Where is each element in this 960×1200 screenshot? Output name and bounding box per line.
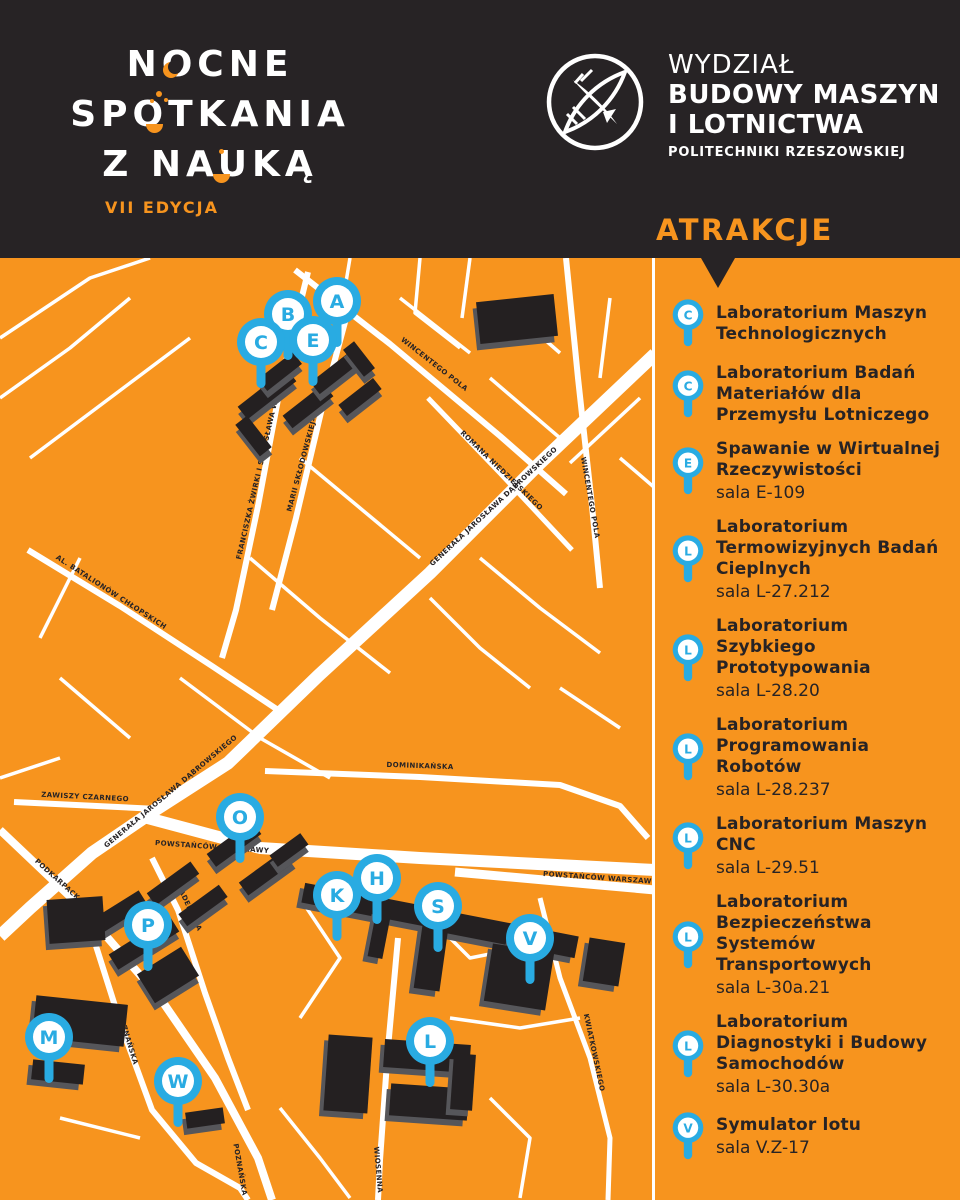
- event-map-poster: NOCNE SPOTKANIA Z NAUKĄ VII EDYCJA WYDZI…: [0, 0, 960, 1200]
- street: [560, 688, 620, 728]
- building: [181, 1107, 226, 1135]
- street: [280, 1108, 350, 1198]
- street: [30, 338, 190, 458]
- event-title-line-2: SPOTKANIA: [40, 90, 380, 140]
- attraction-text: Laboratorium Maszyn CNC sala L-29.51: [716, 814, 952, 879]
- attraction-name: Laboratorium Badań Materiałów dla Przemy…: [716, 363, 952, 426]
- building: [335, 378, 385, 423]
- map-pin-letter: A: [330, 291, 345, 313]
- map-pin-icon: L: [671, 633, 705, 685]
- street: [28, 550, 278, 710]
- attraction-room: sala V.Z-17: [716, 1138, 952, 1159]
- attraction-name: Symulator lotu: [716, 1115, 952, 1136]
- faculty-line-1: WYDZIAŁ: [668, 50, 940, 80]
- building: [446, 1053, 476, 1117]
- flask-bubble-decoration: [156, 91, 162, 97]
- map-pin-letter: E: [307, 330, 320, 352]
- street-label: DOMINIKAŃSKA: [386, 760, 454, 771]
- moon-crescent-decoration: [163, 62, 179, 78]
- street: [14, 802, 158, 809]
- map-pin-letter: P: [141, 915, 155, 937]
- attraction-pin: L: [669, 732, 707, 784]
- building: [578, 937, 625, 993]
- map-pin-letter: B: [281, 304, 295, 326]
- map-pin-icon: L: [671, 920, 705, 972]
- header: NOCNE SPOTKANIA Z NAUKĄ VII EDYCJA WYDZI…: [0, 0, 960, 258]
- attraction-pin-letter: L: [684, 644, 692, 658]
- attraction-name: Laboratorium Programowania Robotów: [716, 715, 952, 778]
- street: [490, 378, 560, 438]
- street: [265, 771, 648, 838]
- attraction-text: Symulator lotu sala V.Z-17: [716, 1115, 952, 1159]
- attraction-text: Laboratorium Bezpieczeństwa Systemów Tra…: [716, 892, 952, 999]
- attraction-text: Laboratorium Diagnostyki i Budowy Samoch…: [716, 1012, 952, 1098]
- flask-bubble-decoration: [150, 99, 154, 103]
- map-pin-icon: E: [671, 446, 705, 498]
- faculty-line-4: POLITECHNIKI RZESZOWSKIEJ: [668, 145, 940, 160]
- street: [450, 1018, 580, 1028]
- heading-pointer-triangle: [701, 258, 735, 288]
- attraction-pin-letter: L: [684, 930, 692, 944]
- faculty-line-2: BUDOWY MASZYN: [668, 80, 940, 110]
- attraction-item: L Laboratorium Bezpieczeństwa Systemów T…: [669, 892, 952, 999]
- street: [462, 258, 470, 318]
- attraction-pin-letter: L: [684, 831, 692, 845]
- attraction-room: sala E-109: [716, 483, 952, 504]
- street: [250, 558, 390, 673]
- attraction-pin-letter: L: [684, 1040, 692, 1054]
- street: [60, 1118, 140, 1138]
- attraction-item: E Spawanie w Wirtualnej Rzeczywistości s…: [669, 439, 952, 504]
- attraction-pin: L: [669, 920, 707, 972]
- attraction-pin: L: [669, 1029, 707, 1081]
- event-title-line-3: Z NAUKĄ: [40, 140, 380, 190]
- attraction-pin-letter: L: [684, 545, 692, 559]
- street: [620, 458, 655, 488]
- attraction-item: C Laboratorium Badań Materiałów dla Prze…: [669, 363, 952, 426]
- street: [480, 558, 600, 653]
- attraction-pin: C: [669, 369, 707, 421]
- map-pin-letter: V: [523, 928, 538, 950]
- map-pin-letter: M: [40, 1027, 59, 1049]
- street: [0, 298, 130, 398]
- map-pin-letter: O: [232, 807, 248, 829]
- attraction-room: sala L-30a.21: [716, 978, 952, 999]
- attraction-text: Laboratorium Maszyn Technologicznych: [716, 303, 952, 345]
- faculty-line-3: I LOTNICTWA: [668, 110, 940, 140]
- attractions-list: C Laboratorium Maszyn Technologicznych C…: [655, 258, 960, 1200]
- street: [430, 598, 530, 688]
- edition-label: VII EDYCJA: [105, 198, 219, 217]
- event-title: NOCNE SPOTKANIA Z NAUKĄ: [40, 40, 380, 190]
- attraction-item: L Laboratorium Programowania Robotów sal…: [669, 715, 952, 801]
- map-pin-icon: C: [671, 298, 705, 350]
- attraction-pin: E: [669, 446, 707, 498]
- attraction-pin: C: [669, 298, 707, 350]
- attraction-item: L Laboratorium Termowizyjnych Badań Ciep…: [669, 517, 952, 603]
- attraction-pin: L: [669, 821, 707, 873]
- street-label: POZNAŃSKA: [231, 1143, 249, 1197]
- map-pin-icon: L: [671, 732, 705, 784]
- attraction-text: Spawanie w Wirtualnej Rzeczywistości sal…: [716, 439, 952, 504]
- building: [319, 1034, 373, 1119]
- map-pin-icon: V: [671, 1111, 705, 1163]
- map-pin-letter: C: [254, 332, 268, 354]
- street: [600, 298, 610, 378]
- attraction-item: C Laboratorium Maszyn Technologicznych: [669, 298, 952, 350]
- campus-map: WINCENTEGO POLAROMANA NIEDZIELSKIEGOWINC…: [0, 258, 655, 1200]
- map-pin-icon: C: [671, 369, 705, 421]
- attraction-pin: V: [669, 1111, 707, 1163]
- attraction-pin-letter: C: [684, 309, 693, 323]
- campus-map-svg: WINCENTEGO POLAROMANA NIEDZIELSKIEGOWINC…: [0, 258, 655, 1200]
- street: [60, 678, 130, 738]
- event-title-line-1: NOCNE: [40, 40, 380, 90]
- attraction-name: Laboratorium Bezpieczeństwa Systemów Tra…: [716, 892, 952, 976]
- building: [26, 1059, 84, 1091]
- street: [0, 758, 60, 778]
- map-pin-icon: L: [671, 1029, 705, 1081]
- attraction-pin-letter: L: [684, 743, 692, 757]
- street: [300, 458, 420, 558]
- street: [490, 1098, 530, 1198]
- attraction-item: L Laboratorium Szybkiego Prototypowania …: [669, 616, 952, 702]
- attraction-name: Laboratorium Maszyn CNC: [716, 814, 952, 856]
- flask-bubble-decoration: [219, 149, 224, 154]
- faculty-plane-logo-icon: [545, 52, 645, 152]
- attraction-pin: L: [669, 633, 707, 685]
- attraction-pin: L: [669, 534, 707, 586]
- building: [472, 294, 559, 350]
- map-pin-letter: W: [168, 1071, 189, 1093]
- street-label: AL. BATALIONÓW CHŁOPSKICH: [54, 553, 168, 631]
- attraction-text: Laboratorium Programowania Robotów sala …: [716, 715, 952, 801]
- attraction-pin-letter: V: [683, 1122, 693, 1136]
- attraction-item: V Symulator lotu sala V.Z-17: [669, 1111, 952, 1163]
- flask-bubble-decoration: [164, 98, 168, 102]
- attraction-name: Laboratorium Maszyn Technologicznych: [716, 303, 952, 345]
- map-pin-letter: S: [431, 896, 445, 918]
- faculty-name: WYDZIAŁ BUDOWY MASZYN I LOTNICTWA POLITE…: [668, 50, 940, 160]
- attraction-name: Laboratorium Termowizyjnych Badań Ciepln…: [716, 517, 952, 580]
- attractions-heading: ATRAKCJE: [656, 213, 834, 247]
- building: [43, 896, 106, 950]
- map-pin-icon: L: [671, 821, 705, 873]
- map-pin-icon: L: [671, 534, 705, 586]
- attraction-room: sala L-30.30a: [716, 1077, 952, 1098]
- attraction-room: sala L-28.237: [716, 780, 952, 801]
- street: [415, 258, 460, 348]
- attraction-pin-letter: E: [684, 456, 692, 470]
- attraction-text: Laboratorium Termowizyjnych Badań Ciepln…: [716, 517, 952, 603]
- attraction-item: L Laboratorium Diagnostyki i Budowy Samo…: [669, 1012, 952, 1098]
- attraction-text: Laboratorium Badań Materiałów dla Przemy…: [716, 363, 952, 426]
- attraction-room: sala L-27.212: [716, 582, 952, 603]
- attraction-item: L Laboratorium Maszyn CNC sala L-29.51: [669, 814, 952, 879]
- attraction-name: Laboratorium Diagnostyki i Budowy Samoch…: [716, 1012, 952, 1075]
- attraction-room: sala L-29.51: [716, 858, 952, 879]
- attraction-name: Laboratorium Szybkiego Prototypowania: [716, 616, 952, 679]
- map-pin-letter: L: [424, 1031, 436, 1053]
- attraction-pin-letter: C: [684, 379, 693, 393]
- map-pin-letter: K: [330, 885, 346, 907]
- attraction-text: Laboratorium Szybkiego Prototypowania sa…: [716, 616, 952, 702]
- attraction-name: Spawanie w Wirtualnej Rzeczywistości: [716, 439, 952, 481]
- map-pin-letter: H: [369, 868, 385, 890]
- attraction-room: sala L-28.20: [716, 681, 952, 702]
